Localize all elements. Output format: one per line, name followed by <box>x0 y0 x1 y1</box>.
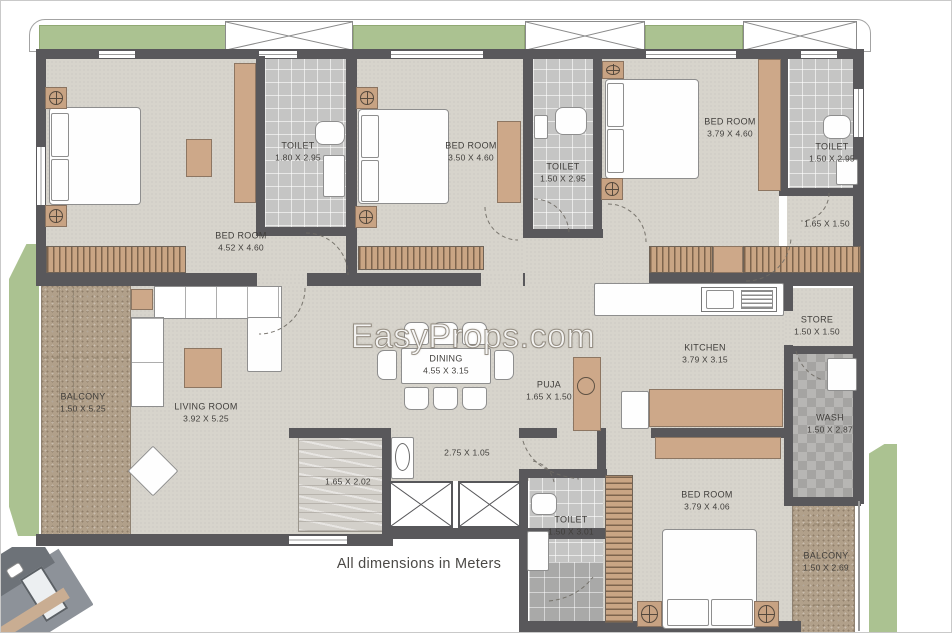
landscape-strip <box>645 25 743 51</box>
room-label-foyer: 1.65 X 1.50 <box>804 218 850 229</box>
toilet-wc <box>823 115 851 139</box>
wardrobe <box>46 246 186 273</box>
room-label-toilet-3: TOILET1.50 X 2.95 <box>809 141 855 164</box>
wall <box>784 497 861 506</box>
duct-shaft <box>525 21 645 51</box>
window <box>99 51 135 58</box>
pillow <box>607 83 624 127</box>
sofa <box>154 286 282 319</box>
nightstand <box>355 206 377 228</box>
room-label-kitchen: KITCHEN3.79 X 3.15 <box>682 342 728 365</box>
pillow <box>667 599 709 626</box>
pillow <box>361 160 379 202</box>
pillow <box>607 129 624 173</box>
window <box>801 51 837 58</box>
wardrobe <box>497 121 521 203</box>
sofa <box>131 317 164 407</box>
room-label-dining: DINING4.55 X 3.15 <box>423 353 469 376</box>
lift-shaft <box>458 481 521 528</box>
landscape-strip <box>39 25 227 51</box>
toilet-2-floor <box>533 56 593 232</box>
kitchen-platform <box>649 389 783 427</box>
toilet-4-shower-floor <box>529 562 603 622</box>
door-opening <box>784 311 793 345</box>
window <box>391 51 483 58</box>
balcony-edge-line <box>858 501 860 631</box>
window <box>289 536 347 544</box>
room-label-toilet-4: TOILET1.50 X 3.01 <box>548 514 594 537</box>
duct-shaft <box>743 21 857 51</box>
room-label-passage: 2.75 X 1.05 <box>444 447 490 458</box>
toilet-wc <box>531 493 557 515</box>
dresser <box>186 139 212 177</box>
chair <box>462 387 487 410</box>
side-table <box>131 289 153 310</box>
window <box>854 89 863 137</box>
door-opening <box>481 273 523 286</box>
lift-shaft <box>389 481 453 528</box>
room-label-toilet-2: TOILET1.50 X 2.95 <box>540 161 586 184</box>
floor-plan: BED ROOM4.52 X 4.60 TOILET1.80 X 2.95 BE… <box>0 0 952 633</box>
toilet-sink <box>534 115 548 139</box>
watermark: EasyProps.com <box>351 318 596 357</box>
wall <box>597 428 606 473</box>
wall <box>256 227 352 236</box>
room-label-store: STORE1.50 X 1.50 <box>794 314 840 337</box>
pillow <box>711 599 753 626</box>
washing-machine <box>827 358 857 391</box>
toilet-sink <box>527 531 549 571</box>
pillow <box>51 113 69 157</box>
pillow <box>51 159 69 201</box>
sofa <box>247 317 282 372</box>
wardrobe <box>358 246 484 270</box>
wall <box>256 56 265 232</box>
dimensions-note: All dimensions in Meters <box>337 556 501 572</box>
stove <box>621 391 649 429</box>
wardrobe <box>605 475 633 623</box>
chair <box>404 387 429 410</box>
window <box>37 147 45 205</box>
room-label-bedroom-3: BED ROOM3.79 X 4.60 <box>704 116 755 139</box>
room-label-balcony-1: BALCONY1.50 X 5.25 <box>60 391 106 414</box>
nightstand <box>45 87 67 109</box>
landscape-strip-right <box>869 444 897 633</box>
door-handle-symbol <box>395 443 410 471</box>
wall <box>523 49 533 233</box>
wardrobe <box>743 246 861 273</box>
coffee-table <box>184 348 222 388</box>
toilet-sink <box>323 155 345 197</box>
wall <box>346 49 357 285</box>
wall <box>784 346 863 354</box>
wall <box>523 229 603 238</box>
room-label-balcony-2: BALCONY1.50 X 2.69 <box>803 550 849 573</box>
nightstand <box>45 205 67 227</box>
nightstand <box>356 87 378 109</box>
room-label-bedroom-1: BED ROOM4.52 X 4.60 <box>215 230 266 253</box>
nightstand <box>754 601 779 627</box>
puja-bowl <box>577 377 595 395</box>
nightstand <box>637 601 662 627</box>
room-label-living-room: LIVING ROOM3.92 X 5.25 <box>174 401 237 424</box>
room-label-bedroom-4: BED ROOM3.79 X 4.06 <box>681 489 732 512</box>
wardrobe <box>649 246 713 273</box>
wardrobe <box>758 59 781 191</box>
room-label-lobby: 1.65 X 2.02 <box>325 476 371 487</box>
sink-basin <box>706 290 734 309</box>
wall <box>593 49 602 233</box>
wall <box>519 428 557 438</box>
room-label-toilet-1: TOILET1.80 X 2.95 <box>275 140 321 163</box>
console <box>655 437 781 459</box>
room-label-puja: PUJA1.65 X 1.50 <box>526 379 572 402</box>
duct-shaft <box>225 21 353 51</box>
landscape-strip <box>353 25 525 51</box>
room-label-wash: WASH1.50 X 2.87 <box>807 412 853 435</box>
cabinet <box>713 246 743 273</box>
window <box>646 51 736 58</box>
nightstand <box>602 61 624 79</box>
door-opening <box>257 273 307 286</box>
nightstand <box>601 178 623 200</box>
chair <box>433 387 458 410</box>
pillow <box>361 115 379 158</box>
wall <box>519 469 607 478</box>
wall <box>779 188 863 196</box>
wardrobe <box>234 63 256 203</box>
3d-preview-thumbnail <box>1 547 93 633</box>
toilet-wc <box>555 107 587 135</box>
sink-drainer <box>741 290 773 309</box>
wall <box>289 428 391 438</box>
landscape-strip-left <box>9 244 39 536</box>
room-label-bedroom-2: BED ROOM3.50 X 4.60 <box>445 140 496 163</box>
